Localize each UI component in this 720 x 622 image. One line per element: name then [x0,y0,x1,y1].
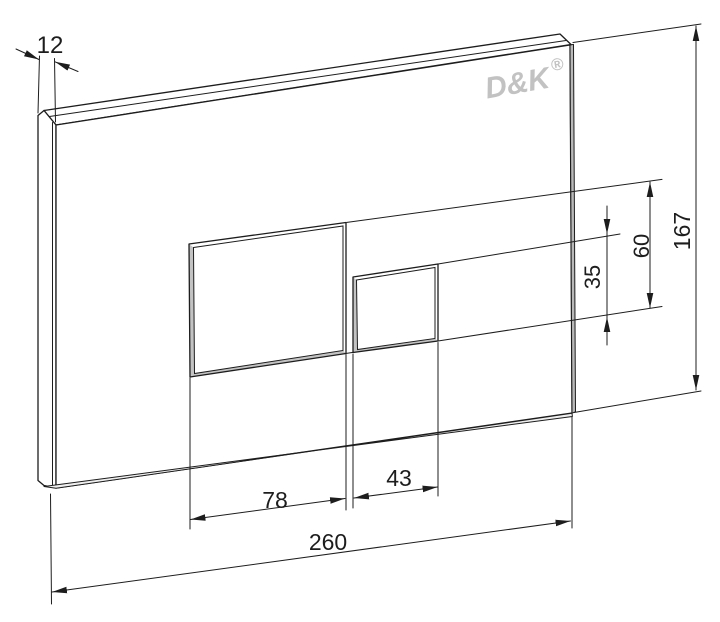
dimension-plate-height: 167 [573,24,701,413]
dim-label-large-button-width: 78 [262,487,288,513]
dim-label-large-button-height: 60 [629,234,654,258]
height-extension-line-bottom [574,391,701,413]
flush-plate-drawing: D&K ® 12 167 60 [0,0,720,622]
thickness-dim-line-left [16,49,39,60]
dim-label-plate-height: 167 [669,212,695,250]
height-extension-line-top [573,24,701,43]
thickness-extension-line-left [38,56,40,113]
dim-label-thickness: 12 [37,32,64,59]
dim-label-plate-width: 260 [309,529,347,555]
thickness-dim-line-right [55,62,78,72]
technical-drawing-canvas: D&K ® 12 167 60 [0,0,720,622]
plate-width-left-extension-line [51,494,52,604]
dim-label-small-button-height: 35 [580,265,605,289]
plate-left-face [38,111,56,489]
dim-label-small-button-width: 43 [386,465,412,491]
